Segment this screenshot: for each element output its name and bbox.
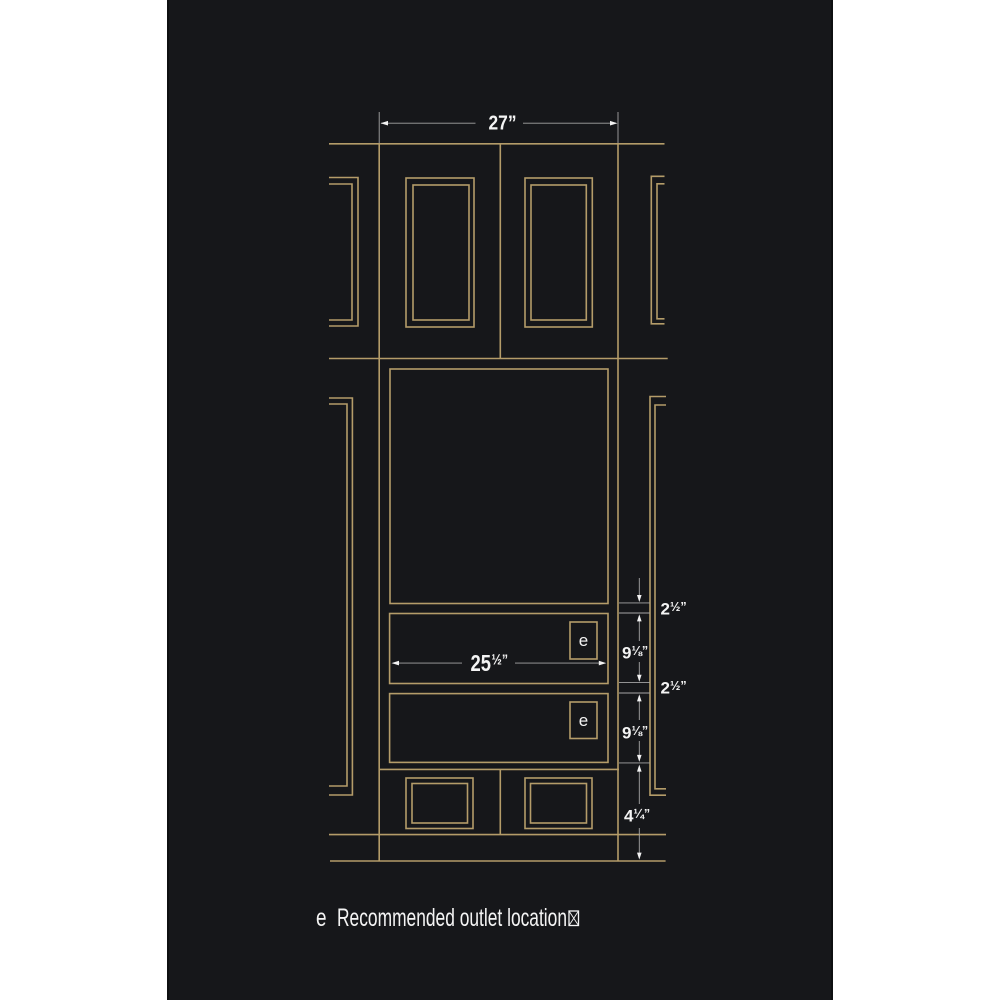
svg-text:27”: 27”: [489, 113, 517, 135]
svg-text:e: e: [579, 631, 588, 650]
svg-text:e: e: [579, 711, 588, 730]
svg-text:9⅛”: 9⅛”: [622, 644, 648, 663]
svg-text:4¼”: 4¼”: [624, 807, 650, 826]
svg-text:e: e: [316, 904, 327, 932]
svg-text:25: 25: [471, 650, 492, 676]
svg-text:2½”: 2½”: [661, 679, 687, 698]
svg-text:2½”: 2½”: [661, 600, 687, 619]
svg-text:Recommended outlet location: Recommended outlet location: [337, 904, 567, 932]
svg-text:½”: ½”: [492, 653, 509, 669]
svg-text:9⅛”: 9⅛”: [622, 724, 648, 743]
